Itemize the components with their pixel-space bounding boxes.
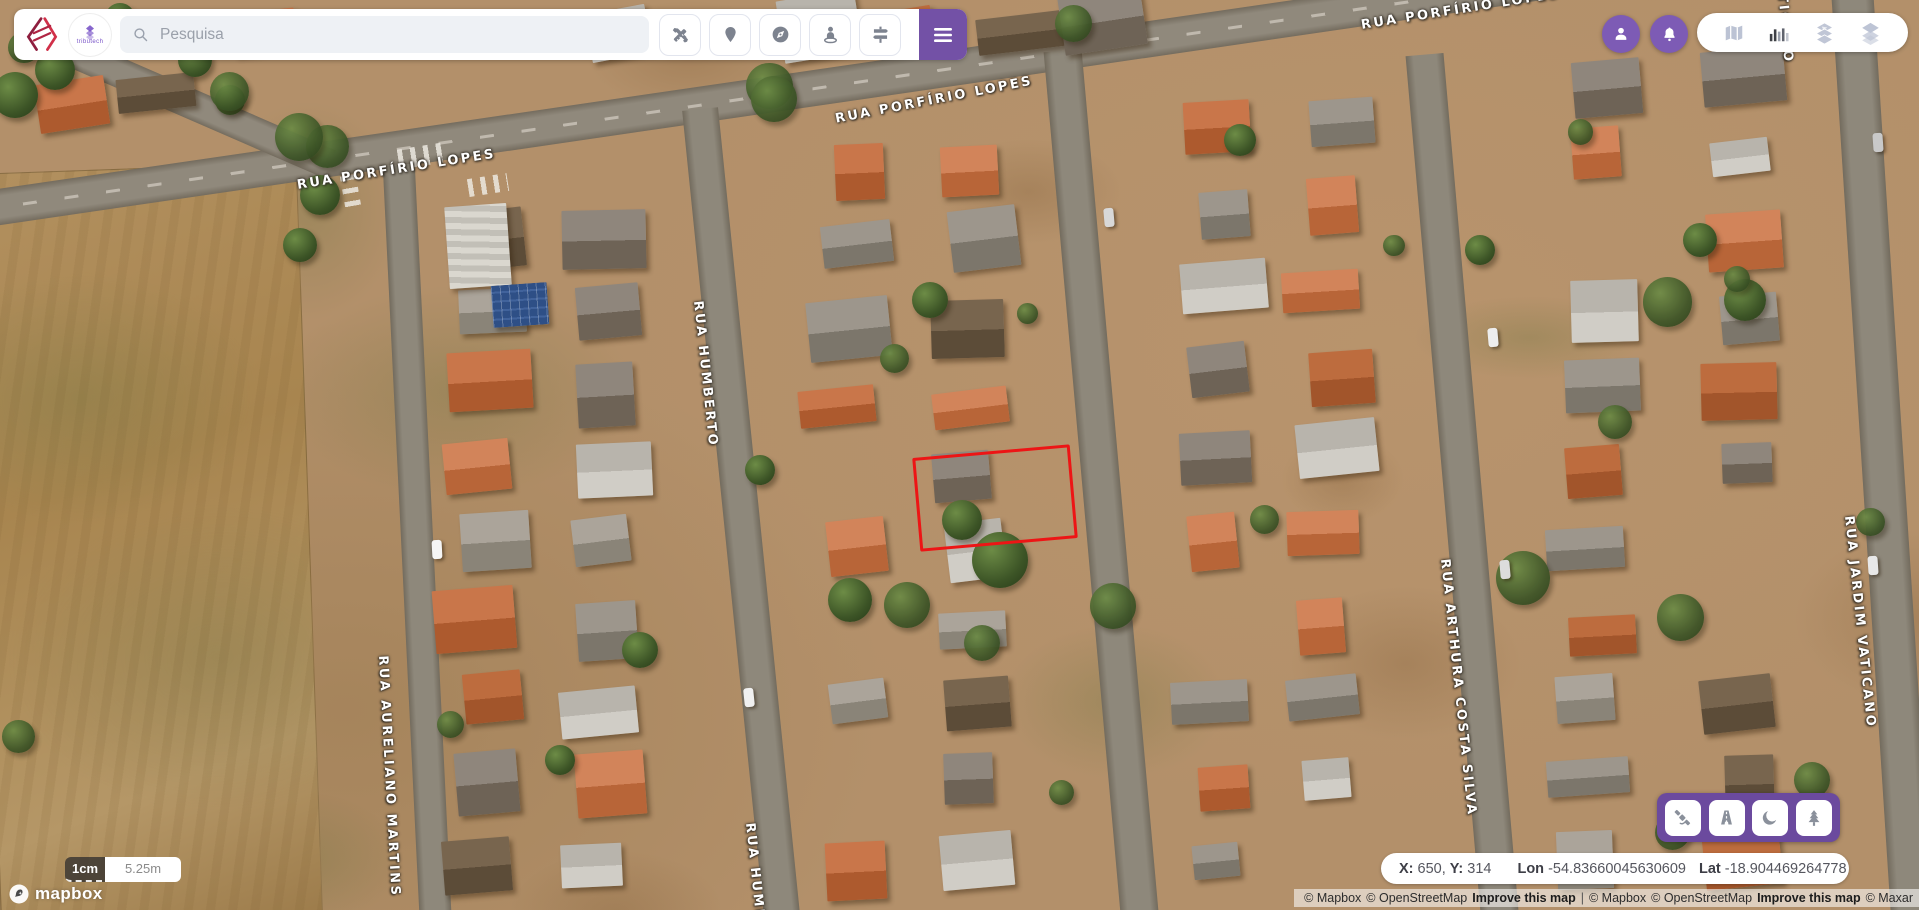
scale-ratio: 1cm	[65, 857, 105, 882]
building-roof	[1568, 614, 1636, 657]
folded-map-button[interactable]	[1722, 22, 1746, 44]
building-roof	[805, 295, 893, 363]
layers-cube-button[interactable]	[1812, 21, 1837, 45]
building-roof	[1564, 357, 1641, 413]
tree-canopy	[283, 228, 317, 262]
building-roof	[1285, 673, 1360, 722]
building-roof	[834, 143, 885, 201]
building-roof	[1699, 45, 1787, 107]
signpost-icon	[870, 24, 891, 45]
building-roof	[1301, 757, 1351, 801]
building-roof	[939, 144, 999, 197]
building-roof	[939, 830, 1015, 891]
satellite-icon	[1672, 807, 1693, 828]
tree-canopy	[275, 113, 323, 161]
tree-canopy	[1049, 780, 1074, 805]
longitude-value: Lon -54.83660045630609	[1517, 861, 1686, 877]
attribution-text: © OpenStreetMap	[1651, 891, 1752, 905]
menu-icon	[934, 28, 952, 42]
mapbox-wordmark: mapbox	[35, 884, 103, 904]
building-roof	[1170, 679, 1249, 725]
car	[1867, 556, 1878, 576]
car	[1499, 560, 1511, 580]
top-toolbar: tributech	[14, 9, 967, 60]
map-attribution: © Mapbox© OpenStreetMapImprove this map|…	[1294, 889, 1919, 907]
solar-panel-roof	[491, 282, 550, 328]
road-style-button[interactable]	[1709, 800, 1745, 836]
building-roof	[560, 843, 623, 889]
location-pin-icon	[721, 25, 740, 44]
design-tools-button[interactable]	[659, 14, 701, 56]
tree-canopy	[912, 282, 948, 318]
tree-canopy	[1724, 266, 1750, 292]
building-roof	[432, 585, 518, 655]
search-input[interactable]	[158, 25, 637, 45]
building-roof	[825, 515, 889, 576]
building-roof	[562, 209, 648, 270]
bar-chart-icon	[1767, 22, 1791, 44]
building-roof	[931, 386, 1010, 431]
mapbox-logo[interactable]: mapbox	[8, 883, 103, 905]
tributech-badge: tributech	[68, 13, 112, 57]
moon-icon	[1760, 808, 1780, 828]
tree-canopy	[0, 72, 38, 118]
location-pin-button[interactable]	[709, 14, 751, 56]
building-roof	[1179, 430, 1252, 486]
building-roof	[1555, 673, 1616, 724]
tree-canopy	[1055, 5, 1092, 42]
terrain-style-button[interactable]	[1796, 800, 1832, 836]
diamond-layers-icon	[82, 25, 98, 40]
tree-canopy	[1683, 223, 1717, 257]
attribution-text: © Mapbox	[1304, 891, 1361, 905]
street-view-button[interactable]	[809, 14, 851, 56]
map-scale: 1cm 5.25m	[65, 857, 181, 882]
brand-logo	[22, 13, 62, 57]
building-roof	[1287, 510, 1360, 556]
scale-distance: 5.25m	[105, 857, 181, 882]
building-roof	[820, 219, 894, 269]
building-roof	[797, 384, 876, 429]
search-bar	[120, 16, 649, 53]
building-roof	[459, 510, 532, 572]
tree-icon	[1804, 808, 1824, 828]
tree-canopy	[1643, 277, 1693, 327]
latitude-value: Lat -18.904469264778	[1699, 861, 1847, 877]
street-view-icon	[820, 24, 841, 45]
building-roof	[1308, 97, 1375, 147]
building-roof	[1294, 417, 1380, 479]
attribution-text: © OpenStreetMap	[1366, 891, 1467, 905]
map-canvas[interactable]: RUA PORFÍRIO LOPESRUA PORFÍRIO LOPESRUA …	[0, 0, 1919, 910]
tree-canopy	[1017, 303, 1038, 324]
building-roof	[454, 748, 521, 816]
tree-canopy	[1383, 235, 1404, 256]
tree-canopy	[884, 582, 930, 628]
road-icon	[1716, 807, 1737, 828]
building-roof	[1191, 842, 1241, 881]
parcel-selection-rectangle[interactable]	[912, 444, 1078, 551]
tree-canopy	[1250, 505, 1279, 534]
building-roof	[1306, 175, 1359, 236]
dark-style-button[interactable]	[1752, 800, 1788, 836]
tree-canopy	[545, 745, 575, 775]
menu-button[interactable]	[919, 9, 967, 60]
building-roof	[1546, 756, 1630, 798]
building-roof	[574, 749, 648, 818]
tree-canopy	[1090, 583, 1136, 629]
building-roof	[571, 514, 632, 568]
satellite-style-button[interactable]	[1665, 800, 1701, 836]
attribution-text: |	[1581, 891, 1584, 905]
building-roof	[1698, 673, 1776, 735]
basemap-style-toolbar	[1657, 793, 1840, 842]
notifications-button[interactable]	[1650, 15, 1688, 53]
tree-canopy	[2, 720, 35, 753]
building-roof	[1544, 526, 1625, 571]
building-roof	[946, 204, 1021, 272]
bar-chart-button[interactable]	[1767, 22, 1791, 44]
building-roof	[1197, 764, 1250, 811]
building-roof	[1186, 341, 1249, 398]
tree-canopy	[1598, 405, 1632, 439]
street	[682, 107, 800, 910]
building-roof	[828, 677, 888, 724]
car	[1872, 133, 1883, 153]
tree-canopy	[745, 455, 775, 485]
compass-icon	[770, 24, 791, 45]
building-roof	[1308, 348, 1376, 407]
user-button[interactable]	[1602, 15, 1640, 53]
user-icon	[1611, 24, 1631, 44]
tree-canopy	[437, 711, 464, 738]
improve-this-map-link[interactable]: Improve this map	[1472, 891, 1576, 905]
pixel-coordinates: X: 650, Y: 314	[1399, 861, 1491, 877]
mapbox-logo-icon	[8, 883, 30, 905]
tree-canopy	[964, 625, 1000, 661]
building-roof	[825, 840, 888, 901]
building-roof	[1709, 137, 1771, 178]
car	[1487, 328, 1499, 348]
signpost-button[interactable]	[859, 14, 901, 56]
layers-icon	[1858, 21, 1883, 45]
car	[743, 688, 755, 708]
building-roof	[441, 837, 513, 896]
building-roof	[576, 361, 637, 428]
design-tools-icon	[670, 24, 691, 45]
building-roof	[1198, 189, 1251, 239]
building-roof	[1186, 512, 1239, 573]
building-roof	[1179, 257, 1269, 314]
coordinates-statusbar: X: 650, Y: 314 Lon -54.83660045630609 La…	[1381, 853, 1849, 884]
building-roof	[1571, 279, 1640, 343]
warehouse-roof	[444, 203, 512, 289]
building-roof	[558, 685, 639, 739]
dirt-field	[0, 163, 323, 910]
tree-canopy	[1657, 594, 1704, 641]
building-roof	[1564, 444, 1623, 499]
improve-this-map-link[interactable]: Improve this map	[1757, 891, 1861, 905]
bell-icon	[1660, 25, 1679, 44]
building-roof	[442, 438, 513, 495]
car	[1103, 208, 1115, 228]
building-roof	[943, 675, 1012, 731]
building-roof	[576, 442, 654, 499]
tree-canopy	[1465, 235, 1495, 265]
layers-cube-icon	[1812, 21, 1837, 45]
building-roof	[1722, 442, 1773, 484]
tree-canopy	[1224, 124, 1256, 156]
map-tools-pill	[1697, 13, 1908, 52]
building-roof	[574, 282, 642, 341]
building-roof	[446, 349, 533, 413]
attribution-text: © Mapbox	[1589, 891, 1646, 905]
car	[432, 540, 443, 559]
tree-canopy	[1568, 119, 1593, 144]
building-roof	[1296, 597, 1346, 656]
badge-label: tributech	[77, 39, 104, 45]
tree-canopy	[828, 578, 872, 622]
tree-canopy	[622, 632, 658, 668]
tree-canopy	[880, 344, 909, 373]
folded-map-icon	[1722, 22, 1746, 44]
building-roof	[1281, 269, 1360, 314]
building-roof	[1571, 57, 1643, 118]
tree-canopy	[210, 72, 249, 111]
crosswalk	[467, 173, 509, 197]
search-icon	[132, 26, 149, 43]
building-roof	[1705, 209, 1784, 272]
tree-canopy	[1856, 508, 1885, 537]
layers-button[interactable]	[1858, 21, 1883, 45]
tree-canopy	[751, 76, 797, 122]
building-roof	[462, 670, 524, 725]
building-roof	[943, 752, 994, 805]
compass-button[interactable]	[759, 14, 801, 56]
building-roof	[1700, 362, 1777, 421]
attribution-text: © Maxar	[1866, 891, 1913, 905]
